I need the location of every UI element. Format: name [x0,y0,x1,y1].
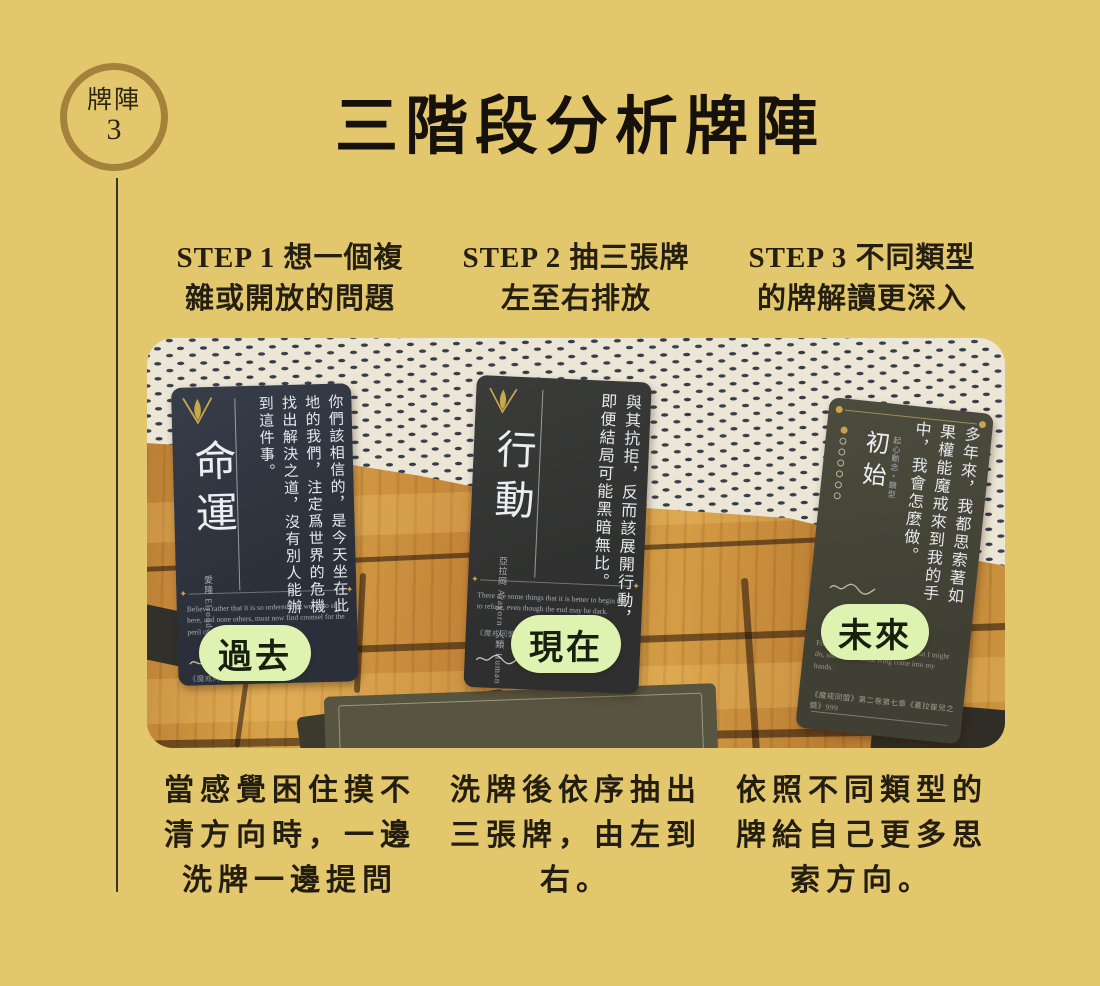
step-2-line-1: STEP 2 抽三張牌 [433,238,719,279]
tarot-card-future: 初始 起心動念・類型 多年來，我都思索著如果權能魔戒來到我的手中，我會怎麼做。 … [795,397,994,744]
captions-row: 當感覺困住摸不 清方向時，一邊 洗牌一邊提問 洗牌後依序抽出 三張牌，由左到 右… [147,768,1005,903]
position-label-present: 現在 [511,615,621,673]
page-title: 三階段分析牌陣 [190,76,970,167]
position-label-past: 過去 [199,625,311,681]
step-1-line-2: 雜或開放的問題 [147,279,433,320]
diamond-icon: ✦ [179,590,187,599]
card-title: 行動 [480,427,542,529]
caption-3-line-2: 牌給自己更多思 [719,813,1005,858]
card-quote: 你們該相信的，是今天坐在此地的我們，注定爲世界的危機找出解決之道，沒有別人能辦到… [243,393,351,632]
caption-1-line-1: 當感覺困住摸不 [147,768,433,813]
caption-2: 洗牌後依序抽出 三張牌，由左到 右。 [433,768,719,903]
vertical-divider [116,178,118,892]
step-2-heading: STEP 2 抽三張牌 左至右排放 [433,238,719,320]
step-3-line-1: STEP 3 不同類型 [719,238,1005,279]
badge-label: 牌陣 [87,88,141,114]
caption-3-line-1: 依照不同類型的 [719,768,1005,813]
tulip-icon [485,385,520,416]
caption-2-line-3: 右。 [433,858,719,903]
spread-number-badge: 牌陣 3 [60,63,168,171]
step-3-line-2: 的牌解讀更深入 [719,279,1005,320]
diamond-icon: ✦ [632,582,640,591]
caption-1-line-2: 清方向時，一邊 [147,813,433,858]
caption-1: 當感覺困住摸不 清方向時，一邊 洗牌一邊提問 [147,768,433,903]
caption-3-line-3: 索方向。 [719,858,1005,903]
caption-2-line-2: 三張牌，由左到 [433,813,719,858]
steps-row: STEP 1 想一個複 雜或開放的問題 STEP 2 抽三張牌 左至右排放 ST… [147,238,1005,320]
infographic-root: 牌陣 3 三階段分析牌陣 STEP 1 想一個複 雜或開放的問題 STEP 2 … [0,0,1100,986]
step-1-heading: STEP 1 想一個複 雜或開放的問題 [147,238,433,320]
tulip-icon [179,395,216,428]
spread-photo: 命運 愛隆 Elrond 你們該相信的，是今天坐在此地的我們，注定爲世界的危機找… [147,338,1005,748]
diamond-icon: ✦ [471,575,479,584]
caption-3: 依照不同類型的 牌給自己更多思 索方向。 [719,768,1005,903]
step-2-line-2: 左至右排放 [433,279,719,320]
caption-1-line-3: 洗牌一邊提問 [147,858,433,903]
card-footer: 《魔戒同盟》第二卷第七章《蓋拉崔兒之鏡》999 [809,689,963,727]
diamond-icon: ✦ [346,585,354,594]
gold-dot-icon [835,406,843,414]
position-label-future: 未來 [821,604,929,660]
step-1-line-1: STEP 1 想一個複 [147,238,433,279]
caption-2-line-1: 洗牌後依序抽出 [433,768,719,813]
badge-number: 3 [107,114,122,146]
step-3-heading: STEP 3 不同類型 的牌解讀更深入 [719,238,1005,320]
dot-column-icon [833,426,848,499]
card-title: 命運 [180,438,244,544]
card-back-border [338,693,704,748]
signature-squiggle [827,578,882,600]
